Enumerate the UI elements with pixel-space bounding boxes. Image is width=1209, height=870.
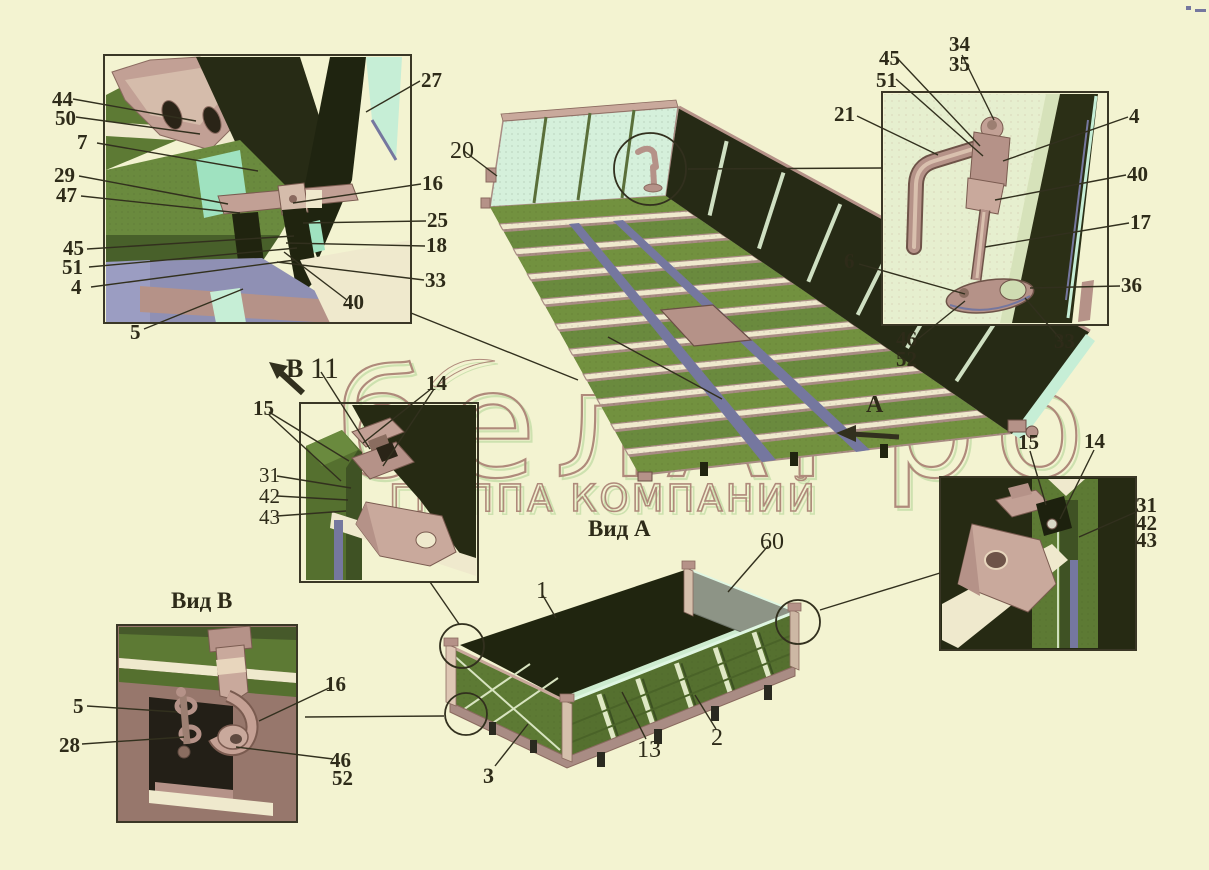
corner-artifact [1186, 6, 1206, 12]
view-arrow-b-icon [269, 362, 303, 393]
inset-view-b-content [117, 625, 297, 822]
diagram-canvas: белАгро белАгро ГРУППА КОМПАНИЙ ГРУППА К… [0, 0, 1209, 870]
diagram-graphics: белАгро белАгро ГРУППА КОМПАНИЙ ГРУППА К… [0, 0, 1209, 870]
inset-bottom-right-content [940, 477, 1136, 650]
inset-top-right-content [882, 92, 1108, 325]
assembled-body-view [444, 561, 801, 768]
